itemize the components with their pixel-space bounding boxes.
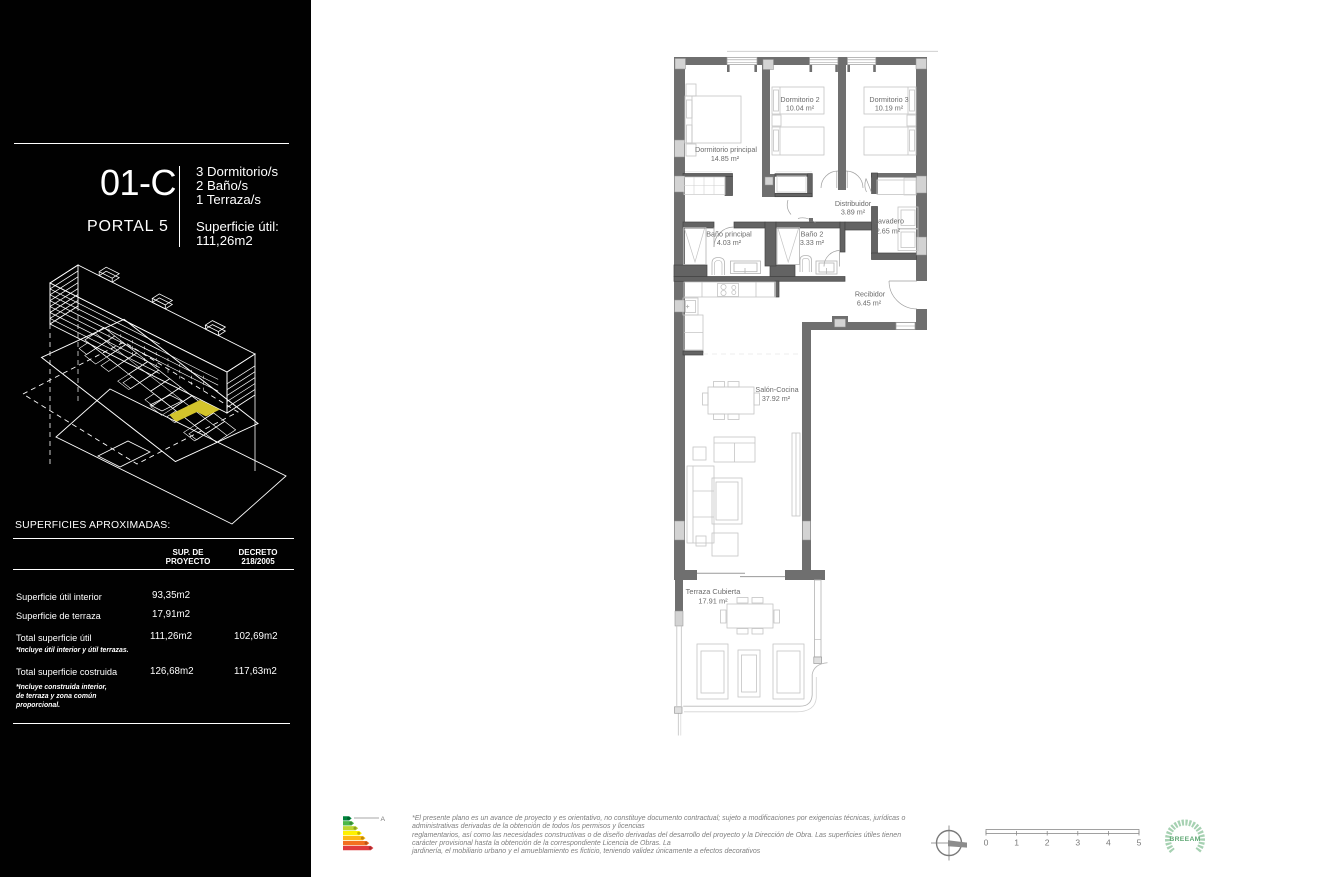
svg-text:5: 5 (1137, 838, 1142, 848)
svg-text:4: 4 (1106, 838, 1111, 848)
svg-text:1: 1 (1014, 838, 1019, 848)
svg-text:2: 2 (1045, 838, 1050, 848)
svg-text:0: 0 (984, 838, 989, 848)
svg-text:BREEAM: BREEAM (1169, 836, 1200, 843)
svg-text:A: A (381, 816, 386, 823)
svg-text:3: 3 (1075, 838, 1080, 848)
